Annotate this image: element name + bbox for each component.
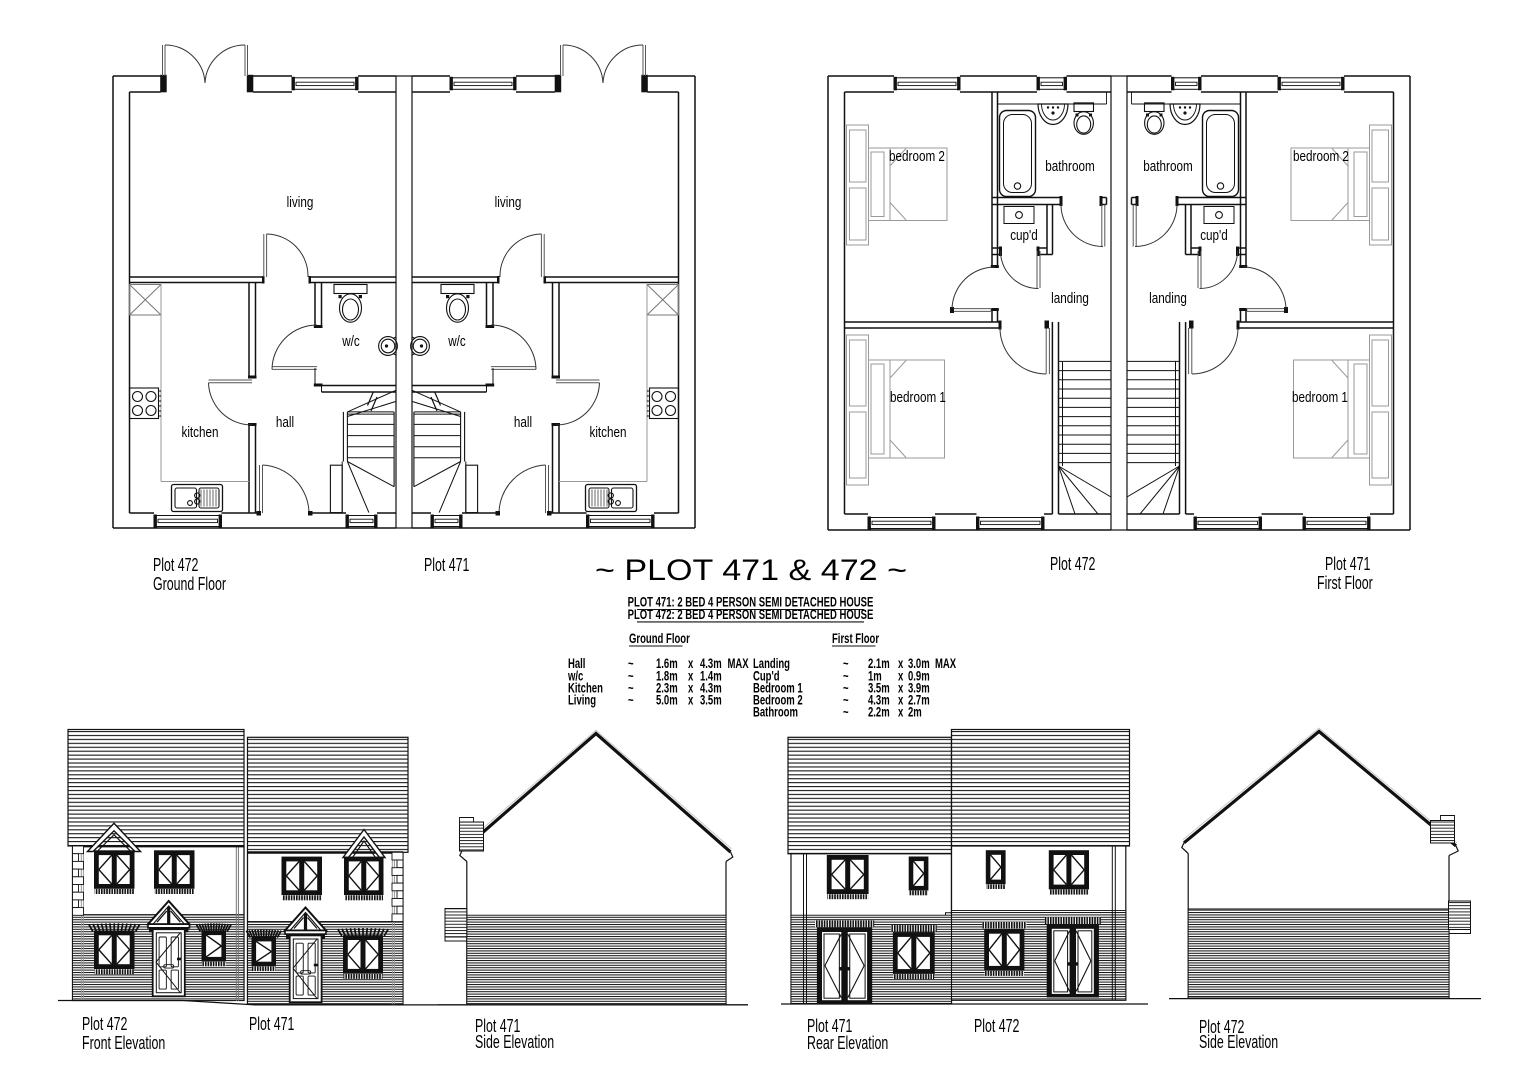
svg-text:3.5m: 3.5m <box>700 692 722 708</box>
svg-text:bedroom 2: bedroom 2 <box>889 148 945 165</box>
svg-text:living: living <box>287 194 314 211</box>
svg-text:Plot 472: Plot 472 <box>974 1017 1019 1037</box>
svg-text:living: living <box>495 194 522 211</box>
svg-text:x: x <box>688 692 694 708</box>
svg-text:~: ~ <box>628 692 634 708</box>
svg-text:MAX: MAX <box>728 655 749 671</box>
svg-text:x: x <box>898 704 904 720</box>
svg-text:bedroom 2: bedroom 2 <box>1293 148 1349 165</box>
svg-text:Ground Floor: Ground Floor <box>629 630 690 646</box>
svg-text:~: ~ <box>843 704 849 720</box>
svg-text:MAX: MAX <box>935 655 956 671</box>
svg-text:Front Elevation: Front Elevation <box>82 1034 165 1054</box>
svg-text:2.2m: 2.2m <box>868 704 890 720</box>
svg-text:Side Elevation: Side Elevation <box>475 1033 554 1053</box>
svg-text:kitchen: kitchen <box>589 424 626 441</box>
svg-text:cup'd: cup'd <box>1200 227 1228 244</box>
svg-text:bedroom 1: bedroom 1 <box>1292 389 1348 406</box>
svg-text:Bathroom: Bathroom <box>753 704 798 720</box>
svg-text:cup'd: cup'd <box>1010 227 1038 244</box>
svg-text:Plot 471: Plot 471 <box>249 1015 294 1035</box>
svg-text:Plot 471: Plot 471 <box>1325 555 1370 575</box>
svg-text:bathroom: bathroom <box>1143 158 1192 175</box>
svg-text:kitchen: kitchen <box>181 424 218 441</box>
svg-text:Rear Elevation: Rear Elevation <box>807 1034 888 1054</box>
svg-text:bedroom 1: bedroom 1 <box>890 389 946 406</box>
svg-text:PLOT 472: 2 BED 4 PERSON: PLOT 472: 2 BED 4 PERSON SEMI DETACHED H… <box>628 606 874 622</box>
svg-text:hall: hall <box>276 414 294 431</box>
svg-text:hall: hall <box>514 414 532 431</box>
svg-text:Plot 472: Plot 472 <box>1050 555 1095 575</box>
svg-text:Living: Living <box>568 692 596 708</box>
svg-text:landing: landing <box>1051 290 1089 307</box>
svg-text:~ PLOT 471 & 472 ~: ~ PLOT 471 & 472 ~ <box>595 554 907 587</box>
svg-text:First Floor: First Floor <box>1317 574 1373 594</box>
svg-text:5.0m: 5.0m <box>656 692 678 708</box>
svg-text:w/c: w/c <box>447 333 466 350</box>
svg-text:Plot 472: Plot 472 <box>82 1015 127 1035</box>
svg-text:Plot 472: Plot 472 <box>153 556 198 576</box>
svg-text:Side Elevation: Side Elevation <box>1199 1033 1278 1053</box>
svg-text:bathroom: bathroom <box>1045 158 1094 175</box>
svg-text:landing: landing <box>1149 290 1187 307</box>
svg-text:2m: 2m <box>908 704 922 720</box>
svg-text:w/c: w/c <box>341 333 360 350</box>
svg-text:Plot 471: Plot 471 <box>424 556 469 576</box>
svg-text:Ground Floor: Ground Floor <box>153 575 226 595</box>
svg-text:First Floor: First Floor <box>832 630 879 646</box>
